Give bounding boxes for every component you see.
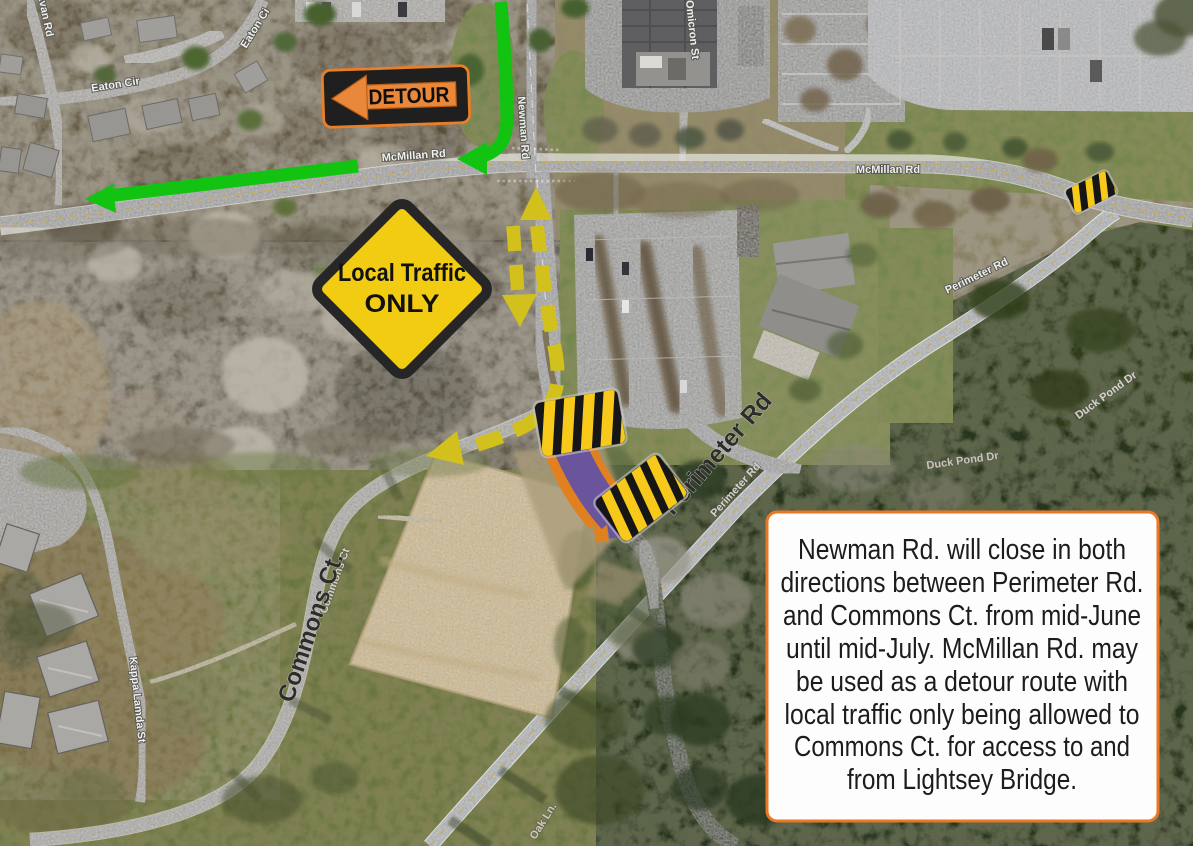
svg-text:DETOUR: DETOUR	[368, 83, 450, 110]
svg-text:Commons Ct. for access to and: Commons Ct. for access to and	[794, 731, 1130, 763]
svg-text:Local Traffic: Local Traffic	[338, 259, 466, 287]
svg-text:ONLY: ONLY	[365, 290, 440, 318]
svg-text:Newman Rd. will close in both: Newman Rd. will close in both	[798, 534, 1126, 566]
svg-text:McMillan Rd: McMillan Rd	[856, 164, 920, 176]
svg-text:local traffic only being allow: local traffic only being allowed to	[785, 699, 1140, 731]
svg-text:from Lightsey Bridge.: from Lightsey Bridge.	[847, 764, 1077, 796]
svg-text:be used as a detour route with: be used as a detour route with	[796, 666, 1128, 698]
svg-text:and Commons Ct. from mid-June: and Commons Ct. from mid-June	[783, 600, 1141, 632]
svg-text:directions between Perimeter R: directions between Perimeter Rd.	[781, 567, 1144, 599]
svg-text:until mid-July. McMillan Rd. m: until mid-July. McMillan Rd. may	[786, 633, 1139, 665]
